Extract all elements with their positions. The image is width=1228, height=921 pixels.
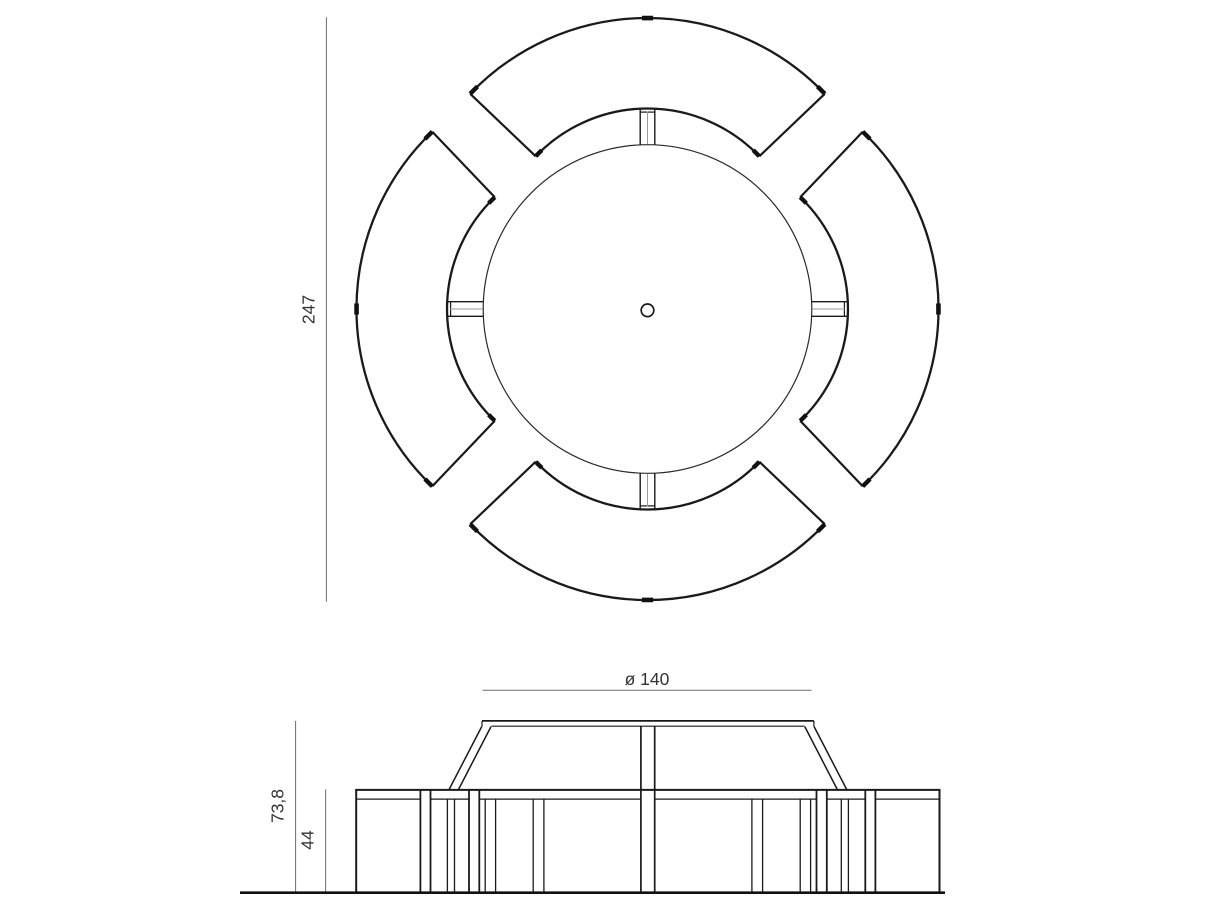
svg-text:ø 140: ø 140 [625,669,670,689]
svg-text:73,8: 73,8 [268,789,288,823]
svg-text:44: 44 [298,830,318,850]
svg-text:247: 247 [299,295,319,324]
